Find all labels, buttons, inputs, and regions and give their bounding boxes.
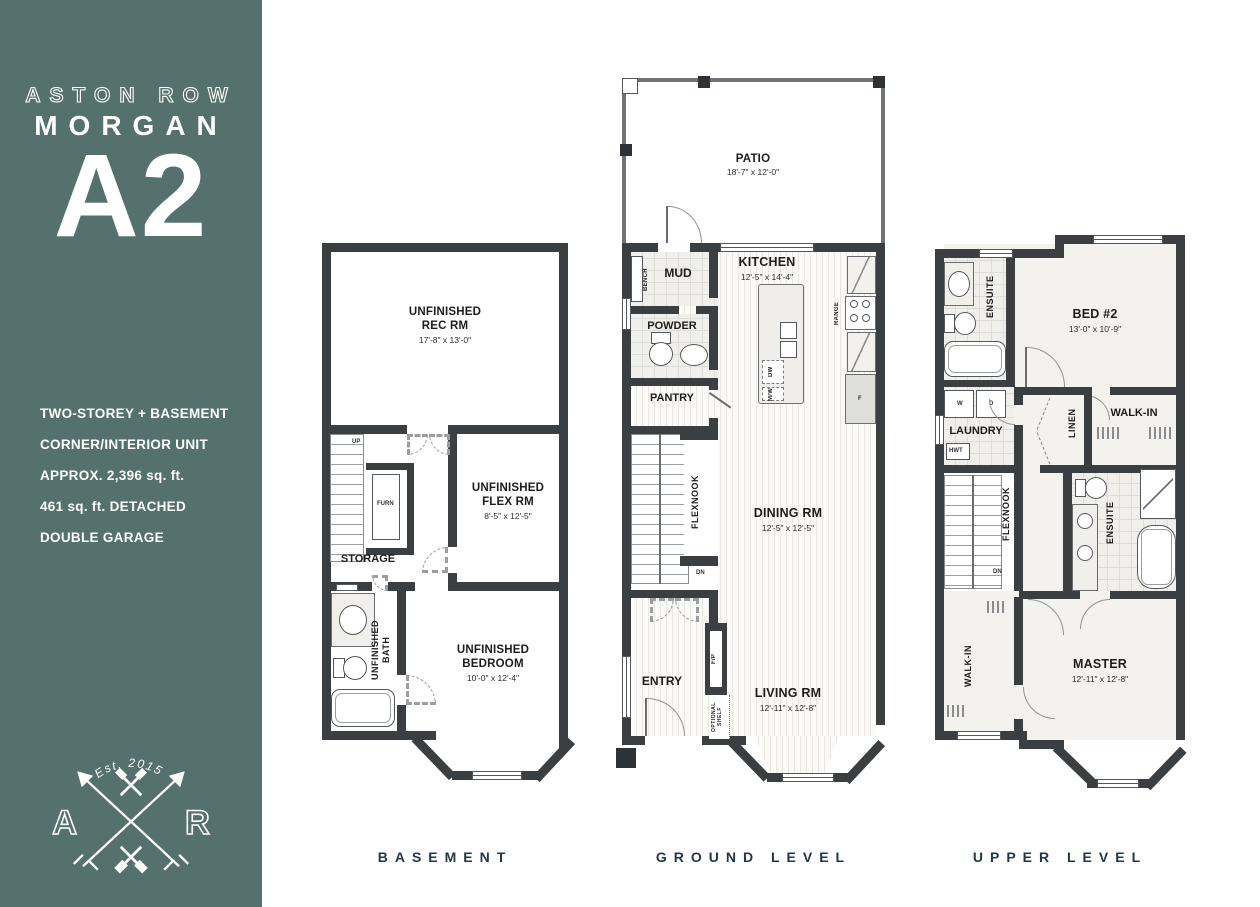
wall — [1063, 465, 1072, 597]
dishwasher-label: DW — [768, 362, 778, 382]
stair-direction: UP — [352, 439, 360, 445]
upper-floor-label: UPPER LEVEL — [935, 849, 1185, 867]
room-label-storage: STORAGE — [328, 553, 408, 565]
patio-wall — [622, 78, 885, 82]
burner — [850, 300, 858, 308]
crossed-brushes-icon — [114, 847, 148, 874]
wall — [631, 590, 718, 598]
window — [782, 773, 834, 782]
room-label-bedroom: UNFINISHED BEDROOM 10'-0" x 12'-4" — [427, 643, 559, 683]
wall — [1014, 425, 1023, 473]
wall — [1014, 387, 1084, 395]
door-arc — [422, 547, 448, 573]
detail-line: DOUBLE GARAGE — [40, 522, 228, 553]
room-label-master: MASTER 12'-11" x 12'-8" — [1030, 657, 1170, 684]
microwave-label: M/W — [768, 386, 778, 402]
room-label-pantry: PANTRY — [634, 392, 710, 404]
svg-text:Est. 2015: Est. 2015 — [92, 756, 166, 781]
wall — [1014, 473, 1023, 591]
wall — [1014, 597, 1023, 685]
hwt-label: HWT — [949, 448, 963, 454]
toilet — [333, 655, 367, 681]
island-sink — [780, 341, 797, 358]
detail-line: TWO-STOREY + BASEMENT — [40, 398, 228, 429]
wall — [622, 736, 645, 745]
furnace — [372, 474, 400, 540]
toilet — [648, 332, 674, 366]
room-label-laundry: LAUNDRY — [943, 425, 1009, 437]
wall — [1110, 591, 1176, 599]
wall — [448, 582, 568, 591]
wall — [631, 306, 679, 314]
wall — [944, 465, 1014, 473]
room-label-dining: DINING RM 12'-5" x 12'-5" — [718, 506, 858, 533]
room-label-entry: ENTRY — [630, 674, 694, 688]
window — [1093, 235, 1163, 244]
door-arc — [429, 434, 450, 455]
wall — [709, 598, 718, 626]
vent — [336, 584, 358, 591]
window — [720, 243, 814, 252]
patio-wall — [622, 78, 626, 247]
fridge-label: F — [858, 396, 862, 402]
logo-letter-a: A — [52, 804, 77, 842]
fireplace-label: F/P — [711, 644, 721, 674]
stair-rail — [659, 434, 661, 584]
floorplan-sheet: ASTON ROW MORGAN A2 TWO-STOREY + BASEMEN… — [0, 0, 1260, 907]
window — [1097, 779, 1139, 788]
wall — [631, 378, 718, 386]
wall — [407, 463, 414, 555]
wall — [680, 430, 718, 440]
wall — [450, 425, 568, 434]
room-label-patio: PATIO 18'-7" x 12'-0" — [688, 152, 818, 177]
stair-direction: DN — [696, 570, 705, 576]
porch-post — [616, 748, 636, 768]
upper-plan: ENSUITE BED #2 13'-0" x 10'-9" W D LAUND… — [935, 235, 1185, 790]
logo-letter-r: R — [185, 804, 210, 842]
wall — [680, 556, 718, 566]
room-label-linen: LINEN — [1067, 400, 1080, 446]
window — [622, 298, 631, 330]
window — [957, 731, 1001, 740]
patio-post — [698, 76, 710, 88]
wall — [1084, 387, 1092, 465]
wall — [1014, 719, 1023, 740]
detail-line: APPROX. 2,396 sq. ft. — [40, 460, 228, 491]
room-label-powder: POWDER — [634, 320, 710, 332]
room-label-flexnook: FLEXNOOK — [690, 462, 704, 542]
closet-rail — [947, 705, 967, 717]
crossed-hammers-icon — [115, 768, 147, 795]
washer-label: W — [957, 401, 963, 407]
room-label-master-ensuite: ENSUITE — [1105, 493, 1119, 553]
sink — [1077, 545, 1093, 561]
wall — [397, 591, 406, 675]
patio-wall — [881, 78, 885, 247]
bay-wall — [843, 740, 885, 784]
room-label-walkin-bed2: WALK-IN — [1095, 407, 1173, 419]
bay-wall — [412, 735, 456, 780]
closet-rail — [987, 601, 1007, 613]
door-arc — [407, 434, 428, 455]
closet-rail — [1149, 427, 1171, 439]
sidebar: ASTON ROW MORGAN A2 TWO-STOREY + BASEMEN… — [0, 0, 262, 907]
patio-post — [873, 76, 885, 88]
brand-collection: ASTON ROW — [0, 84, 262, 108]
room-label-bed2: BED #2 13'-0" x 10'-9" — [1025, 307, 1165, 334]
wall — [1176, 235, 1185, 740]
wall — [1055, 235, 1064, 258]
cabinet — [847, 332, 876, 372]
wall — [709, 308, 718, 370]
detail-line: CORNER/INTERIOR UNIT — [40, 429, 228, 460]
basement-floor-label: BASEMENT — [322, 849, 568, 867]
closet-rail — [1097, 427, 1119, 439]
wall — [709, 378, 718, 390]
wall — [1006, 258, 1015, 387]
basement-plan: UP FURN UNFINISHED REC RM 17'-8" x 13'-0… — [322, 243, 568, 788]
wall — [397, 705, 406, 740]
room-label-rec-room: UNFINISHED REC RM 17'-8" x 13'-0" — [370, 305, 520, 345]
plan-details: TWO-STOREY + BASEMENT CORNER/INTERIOR UN… — [40, 398, 228, 553]
stairs — [330, 434, 364, 562]
window — [472, 771, 522, 780]
plan-code: A2 — [0, 128, 262, 264]
shower — [1140, 469, 1176, 519]
wall — [1014, 395, 1023, 405]
window — [979, 249, 1013, 258]
wall — [944, 380, 1015, 387]
toilet — [1075, 476, 1107, 500]
room-label-bath: UNFINISHED BATH — [370, 595, 396, 705]
bathtub — [944, 341, 1006, 377]
stair-rail — [972, 475, 974, 589]
wall — [322, 243, 568, 252]
bay-wall — [1144, 747, 1187, 791]
stair-direction: DN — [993, 569, 1002, 575]
sink — [1077, 513, 1093, 529]
toilet — [944, 311, 976, 336]
ground-floor-label: GROUND LEVEL — [622, 849, 885, 867]
wall — [1110, 387, 1185, 395]
room-label-living: LIVING RM 12'-11" x 12'-8" — [718, 686, 858, 713]
room-label-walkin-master: WALK-IN — [963, 633, 979, 699]
room-label-flex-room: UNFINISHED FLEX RM 8'-5" x 12'-5" — [454, 481, 562, 521]
patio-corner — [622, 78, 638, 94]
cabinet — [847, 256, 876, 294]
sink — [339, 605, 367, 635]
wall — [322, 425, 407, 434]
sink — [948, 271, 970, 297]
door-arc — [372, 575, 388, 591]
burner — [850, 314, 858, 322]
wall — [1019, 591, 1080, 599]
bench — [631, 256, 643, 302]
island-sink — [780, 322, 797, 339]
room-label-flexnook: FLEXNOOK — [1001, 483, 1013, 545]
wall — [935, 249, 944, 740]
wall — [388, 582, 415, 591]
room-label-ensuite2: ENSUITE — [985, 267, 999, 327]
patio-post — [620, 144, 632, 156]
burner — [862, 300, 870, 308]
brand-logo-icon: Est. 2015 A R — [45, 738, 217, 896]
room-label-kitchen: KITCHEN 12'-5" x 14'-4" — [697, 255, 837, 282]
wall — [876, 243, 885, 725]
furnace-label: FURN — [377, 501, 394, 507]
burner — [862, 314, 870, 322]
ground-plan: PATIO 18'-7" x 12'-0" BENCH MUD POWDE — [622, 78, 885, 790]
detail-line: 461 sq. ft. DETACHED — [40, 491, 228, 522]
freestanding-tub — [1137, 525, 1176, 589]
logo-established: Est. 2015 — [92, 756, 166, 781]
bay-wall — [533, 738, 575, 782]
range-label: RANGE — [834, 296, 844, 330]
sink — [680, 344, 708, 366]
